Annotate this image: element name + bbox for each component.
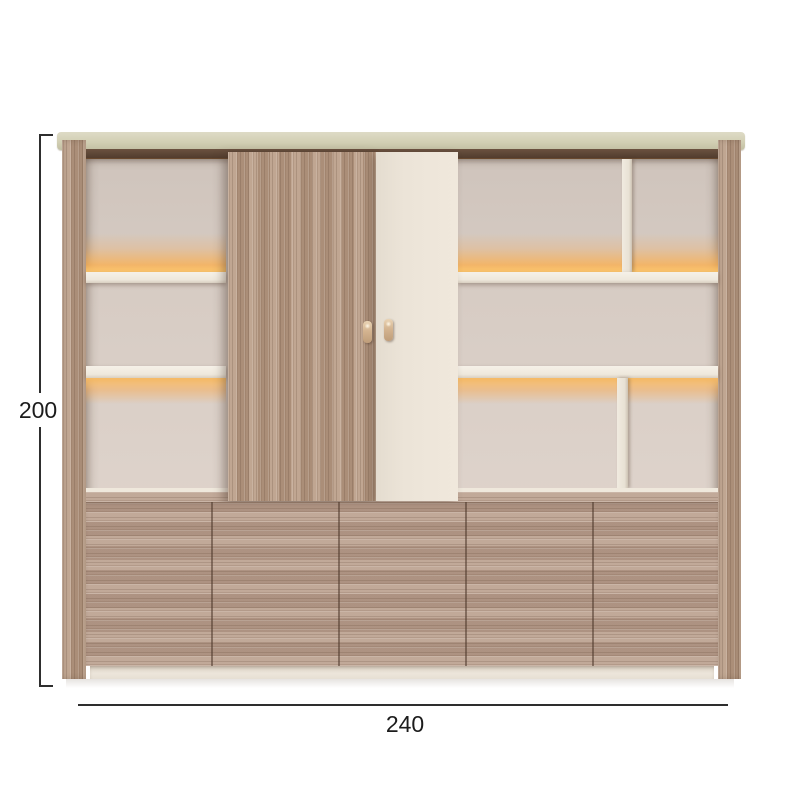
shelf — [86, 272, 226, 283]
product-dimension-diagram: 200 240 — [0, 0, 800, 800]
plinth-base — [90, 666, 714, 679]
led-glow — [458, 378, 718, 404]
led-glow — [458, 233, 622, 272]
sliding-door-wood — [228, 152, 376, 501]
drawer-front-gap — [465, 502, 467, 666]
drawer-front-gap — [338, 502, 340, 666]
height-dimension-tick-bottom — [39, 685, 53, 687]
ground-shadow — [66, 679, 734, 688]
drawer-front-gap — [592, 502, 594, 666]
shelf — [458, 366, 718, 378]
top-board — [57, 132, 745, 150]
height-dimension-line — [39, 427, 41, 687]
door-handle — [384, 319, 393, 341]
door-handle — [363, 321, 372, 343]
shelf — [86, 366, 226, 378]
width-dimension-line — [78, 704, 728, 706]
led-glow — [86, 378, 226, 404]
drawer-front-gap — [211, 502, 213, 666]
height-dimension-tick-top — [39, 134, 53, 136]
right-side-panel — [718, 140, 741, 679]
vertical-divider — [617, 378, 628, 488]
led-glow — [632, 233, 718, 272]
led-glow — [86, 233, 226, 272]
vertical-divider — [622, 159, 632, 272]
width-dimension-label: 240 — [365, 711, 445, 737]
height-dimension-line — [39, 135, 41, 393]
shelf — [458, 272, 718, 283]
drawer-unit — [86, 502, 718, 666]
height-dimension-label: 200 — [10, 397, 66, 423]
